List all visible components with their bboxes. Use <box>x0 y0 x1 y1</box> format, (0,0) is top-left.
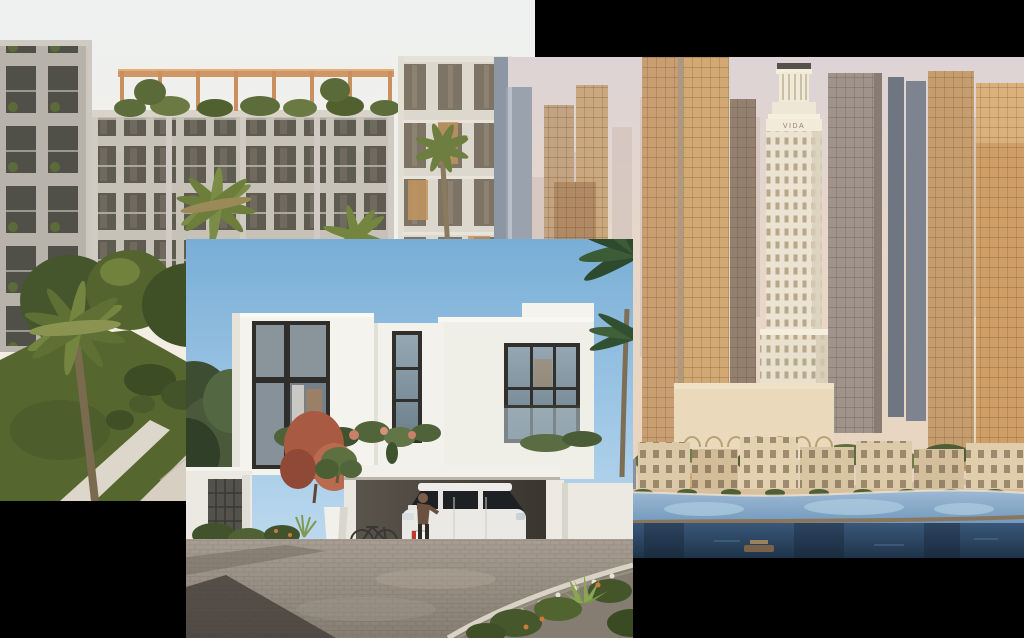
vida-tower-sign: VIDA <box>783 123 805 130</box>
boat <box>744 545 774 552</box>
property-photo-collage: VIDA <box>0 0 1024 638</box>
villa-illustration <box>186 239 633 638</box>
villa-driveway-photo <box>186 239 633 638</box>
